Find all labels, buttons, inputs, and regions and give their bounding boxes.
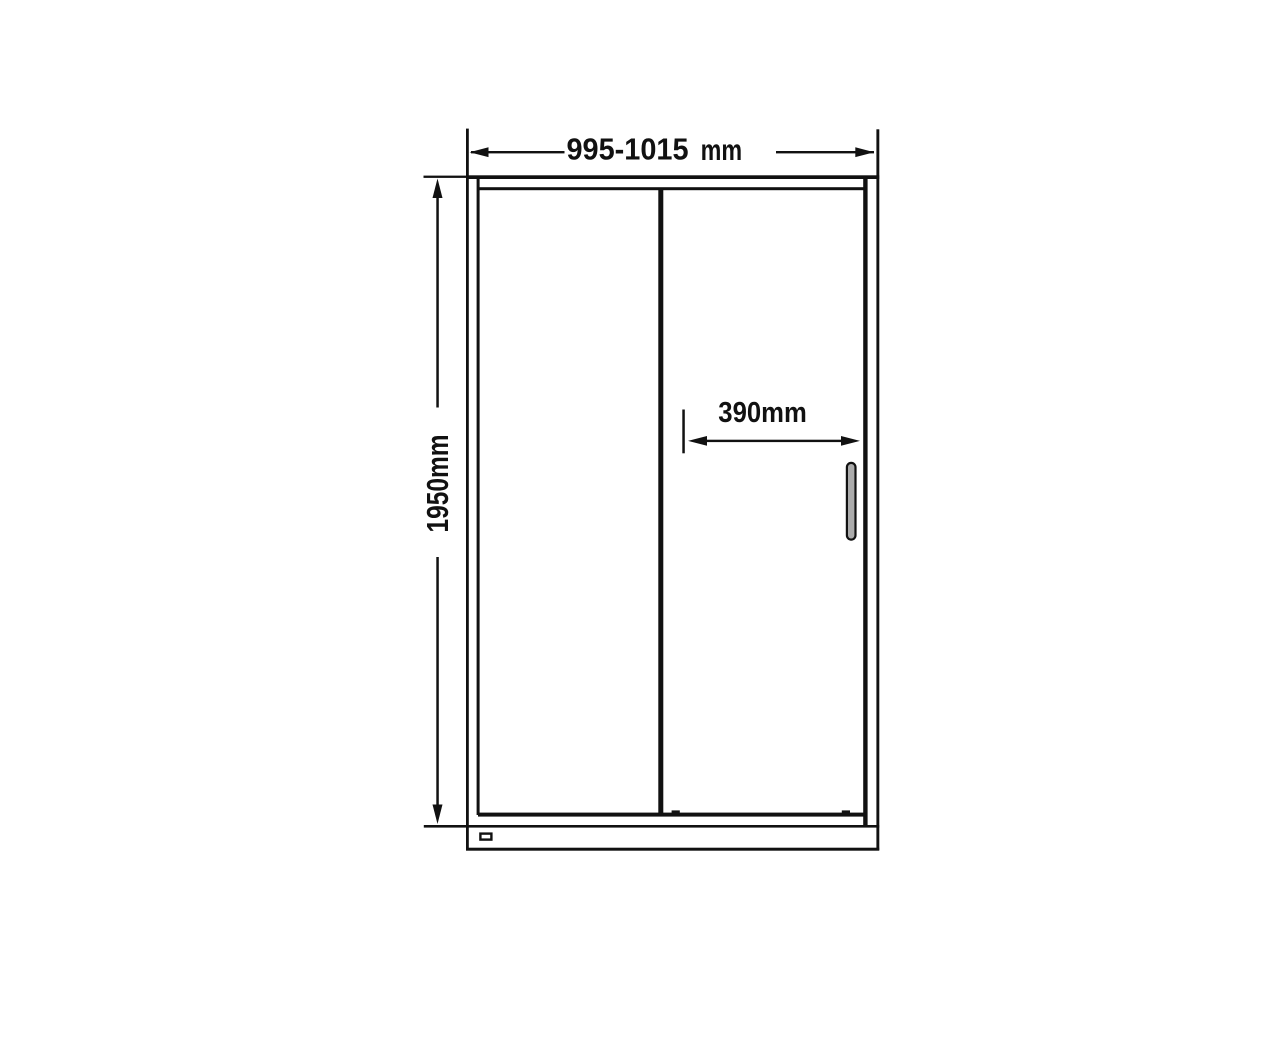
svg-text:1950mm: 1950mm	[420, 435, 455, 533]
svg-text:390mm: 390mm	[718, 397, 807, 429]
svg-text:mm: mm	[701, 134, 743, 167]
svg-text:995-1015: 995-1015	[567, 132, 689, 167]
